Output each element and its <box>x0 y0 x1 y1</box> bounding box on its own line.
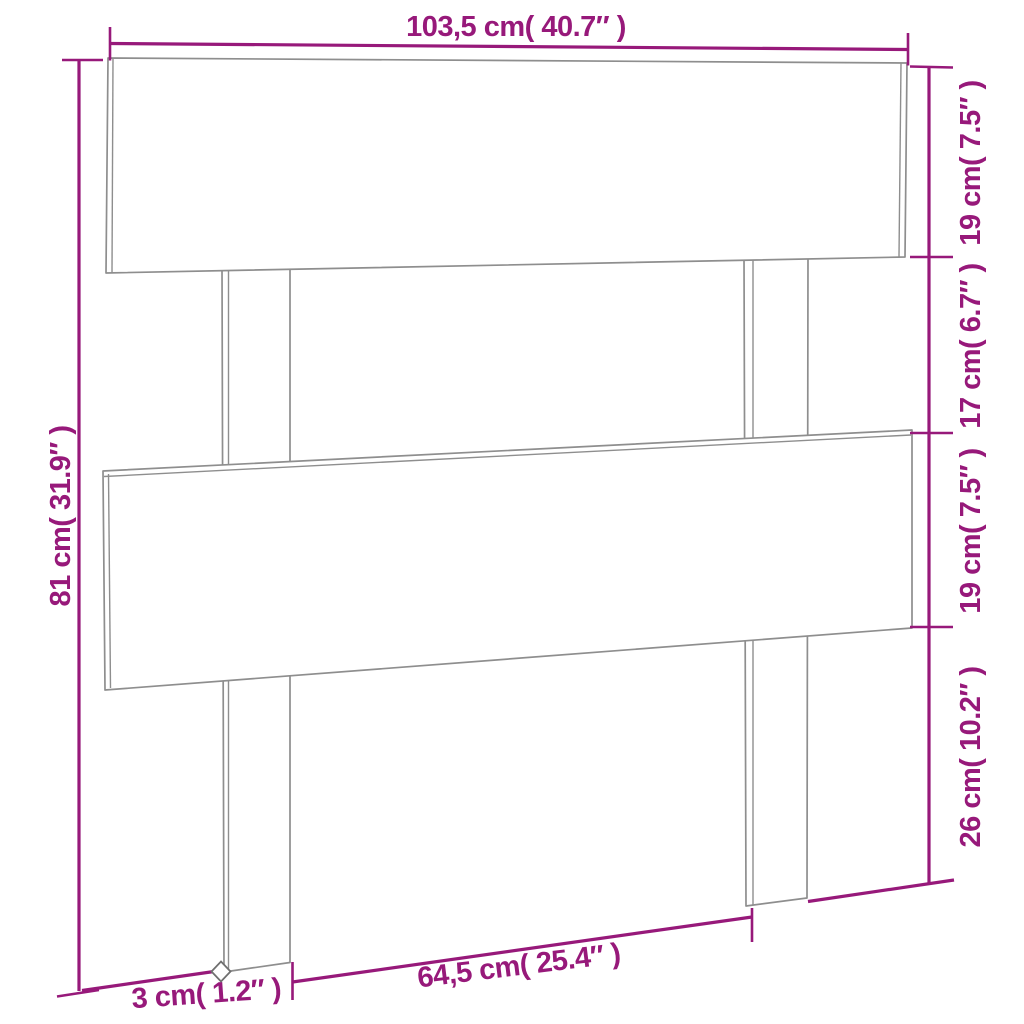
diagram-canvas: 103,5 cm( 40.7″ ) 81 cm( 31.9″ ) 19 cm( … <box>0 0 1024 1024</box>
floor-extension-line-right <box>808 880 954 902</box>
top-board-left-edge <box>112 59 113 273</box>
dimension-overall-height: 81 cm( 31.9″ ) <box>45 60 103 997</box>
legs-span-label: 64,5 cm( 25.4″ ) <box>416 938 623 995</box>
right-tick-top-board-top <box>910 67 953 68</box>
headboard-drawing <box>103 58 912 972</box>
dimension-legs-span: 64,5 cm( 25.4″ ) <box>293 908 753 1000</box>
dimension-leg-depth: 3 cm( 1.2″ ) <box>82 972 282 1016</box>
top-board-height-label: 19 cm( 7.5″ ) <box>955 80 987 245</box>
overall-width-label: 103,5 cm( 40.7″ ) <box>406 11 626 43</box>
dimension-overall-width: 103,5 cm( 40.7″ ) <box>110 11 908 66</box>
width-dim-line <box>110 44 907 50</box>
overall-height-label: 81 cm( 31.9″ ) <box>45 426 77 607</box>
top-board <box>106 58 907 273</box>
middle-gap-height-label: 17 cm( 6.7″ ) <box>955 263 987 428</box>
headboard-dimension-diagram: 103,5 cm( 40.7″ ) 81 cm( 31.9″ ) 19 cm( … <box>0 0 1024 1024</box>
leg-bottom-height-label: 26 cm( 10.2″ ) <box>955 667 987 848</box>
lower-board-height-label: 19 cm( 7.5″ ) <box>955 448 987 613</box>
